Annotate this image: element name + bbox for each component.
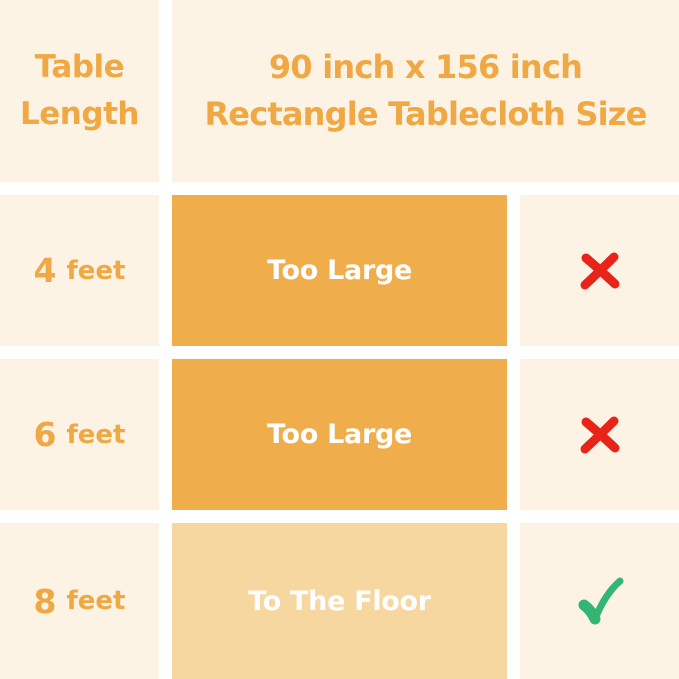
table-length-line1: Table [35,44,124,91]
row-6ft-fit-block: Too Large [172,359,507,510]
cross-icon [577,249,623,293]
chart-title-line2: Rectangle Tablecloth Size [204,91,646,138]
tablecloth-size-chart: Table Length 90 inch x 156 inch Rectangl… [0,0,679,679]
row-4ft-label: 4 feet [0,195,159,346]
row-4ft-fit-block: Too Large [172,195,507,346]
row-6ft-label: 6 feet [0,359,159,510]
length-unit: feet [66,256,125,286]
length-value: 4 [34,251,57,290]
row-8ft-label: 8 feet [0,523,159,679]
cross-icon [577,413,623,457]
length-value: 8 [34,582,57,621]
length-unit: feet [66,420,125,450]
table-length-header: Table Length [0,0,159,182]
length-value: 6 [34,415,57,454]
row-8ft-fit-block: To The Floor [172,523,507,679]
fit-label: To The Floor [248,586,431,617]
row-6ft-verdict [520,359,679,510]
row-8ft-verdict [520,523,679,679]
check-icon [565,570,635,632]
chart-title: 90 inch x 156 inch Rectangle Tablecloth … [172,0,679,182]
table-length-line2: Length [20,91,139,138]
fit-label: Too Large [267,419,412,450]
chart-title-line1: 90 inch x 156 inch [269,44,582,91]
row-4ft-verdict [520,195,679,346]
fit-label: Too Large [267,255,412,286]
length-unit: feet [66,586,125,616]
